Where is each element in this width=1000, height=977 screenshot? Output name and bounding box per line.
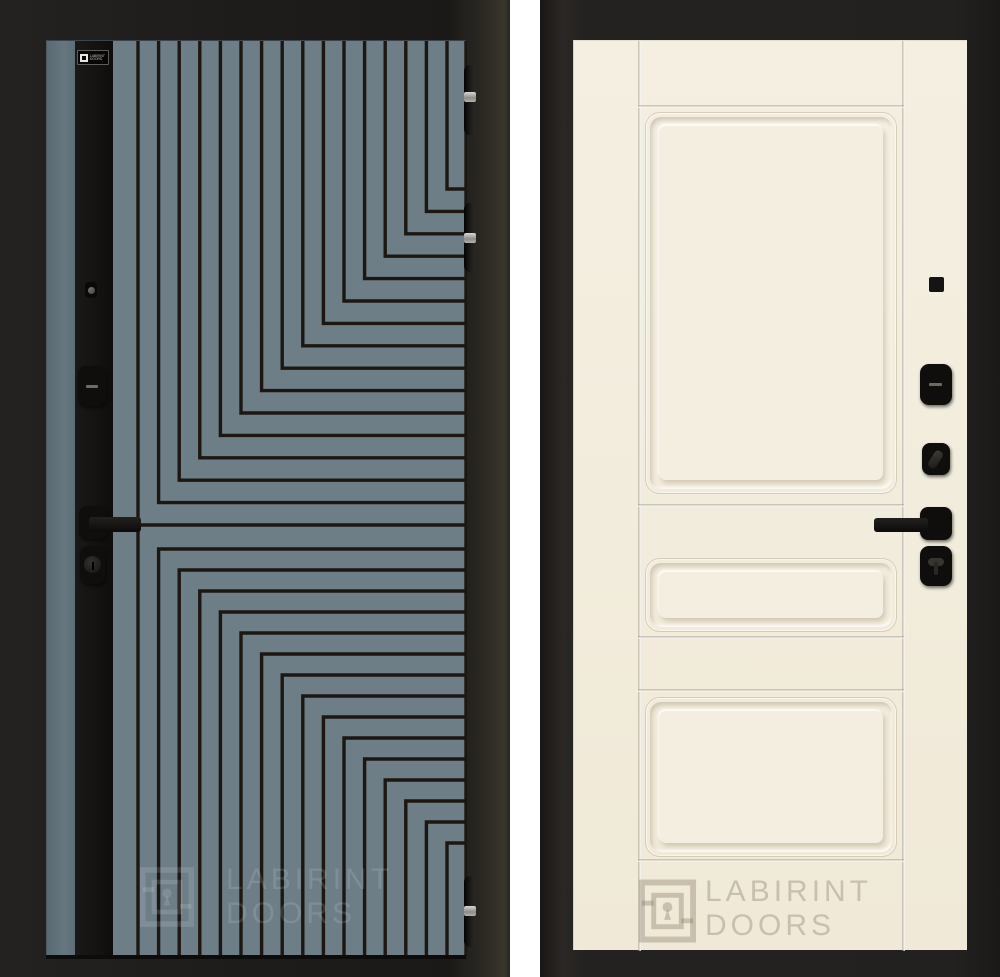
hinge-top (464, 65, 476, 135)
watermark-text-line2: DOORS (226, 897, 356, 930)
product-image-two-door-sides: LABIRINT DOORS LABIRI (0, 0, 1000, 977)
badge-text-1: LABIRINT (90, 54, 105, 57)
peephole-icon (929, 277, 944, 292)
watermark-text-line1: LABIRINT (226, 863, 393, 896)
watermark-text-line2: DOORS (705, 909, 835, 942)
left-stile-groove (638, 41, 641, 951)
left-keyhole-escutcheon (80, 546, 105, 584)
bottom-rail-groove (638, 859, 904, 862)
lock-rail-groove-1 (638, 504, 904, 507)
watermark-logo-icon (638, 877, 697, 945)
right-door-lever-handle (874, 518, 928, 532)
left-door-pattern-panel (113, 41, 467, 956)
right-lock-escutcheon (920, 364, 952, 405)
left-door-leaf: LABIRINT DOORS LABIRI (46, 40, 466, 955)
right-door-photo[interactable]: LABIRINT DOORS (540, 0, 1000, 977)
peephole-screw-icon (85, 282, 97, 298)
left-door-pattern (113, 41, 467, 956)
hinge-bottom (464, 876, 476, 947)
top-rail-groove (638, 105, 904, 108)
watermark-text-line1: LABIRINT (705, 875, 872, 908)
lock-rail-groove-3 (638, 689, 904, 692)
raised-panel-middle (646, 559, 896, 631)
left-door-lever-handle (89, 517, 141, 532)
thumbturn-escutcheon (920, 546, 952, 586)
badge-text-2: DOORS (90, 58, 102, 61)
key-cylinder-escutcheon (922, 443, 950, 475)
brand-badge-icon (80, 54, 88, 62)
hinge-middle (464, 203, 476, 272)
raised-panel-bottom (646, 698, 896, 856)
left-door-hardware-strip (75, 41, 113, 956)
left-door-hinge-stile (47, 41, 75, 956)
lock-rail-groove-2 (638, 636, 904, 639)
right-stile-groove (902, 41, 905, 951)
watermark-logo-icon (139, 864, 195, 930)
left-smart-lock-escutcheon (78, 366, 106, 406)
left-door-photo[interactable]: LABIRINT DOORS LABIRI (0, 0, 510, 977)
left-door-bottom-shadow (46, 955, 466, 959)
right-door-leaf: LABIRINT DOORS (573, 40, 967, 950)
raised-panel-top (646, 113, 896, 493)
brand-badge: LABIRINT DOORS (77, 50, 109, 65)
